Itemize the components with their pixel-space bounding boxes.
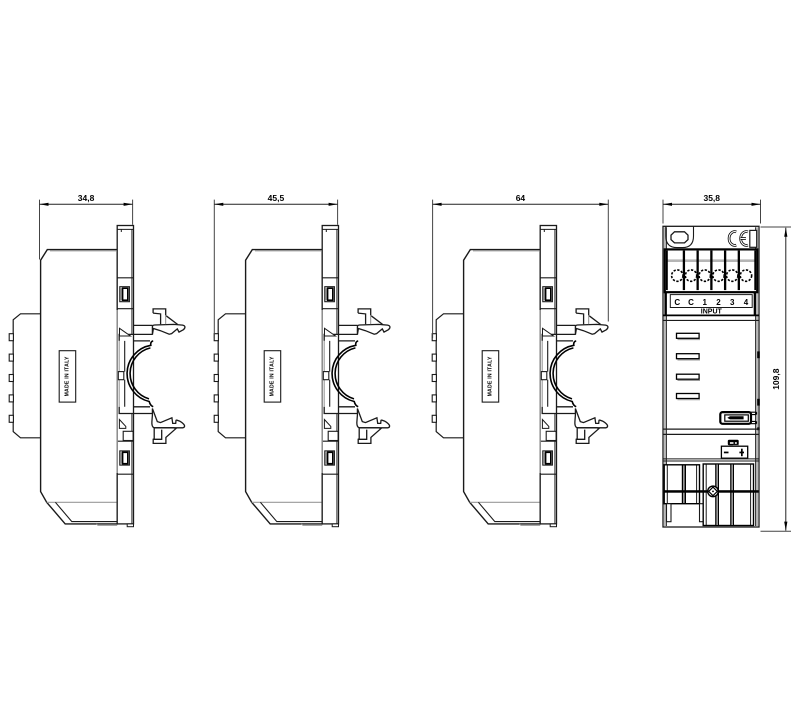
svg-text:2: 2 [716,298,721,307]
svg-text:45,5: 45,5 [268,193,285,203]
svg-text:3: 3 [730,298,735,307]
svg-text:C: C [688,298,694,307]
svg-text:64: 64 [516,193,526,203]
svg-text:C: C [674,298,680,307]
svg-text:1: 1 [703,298,708,307]
svg-text:4: 4 [744,298,749,307]
svg-text:109,8: 109,8 [771,368,781,390]
svg-text:35,8: 35,8 [703,193,720,203]
svg-text:34,8: 34,8 [78,193,95,203]
